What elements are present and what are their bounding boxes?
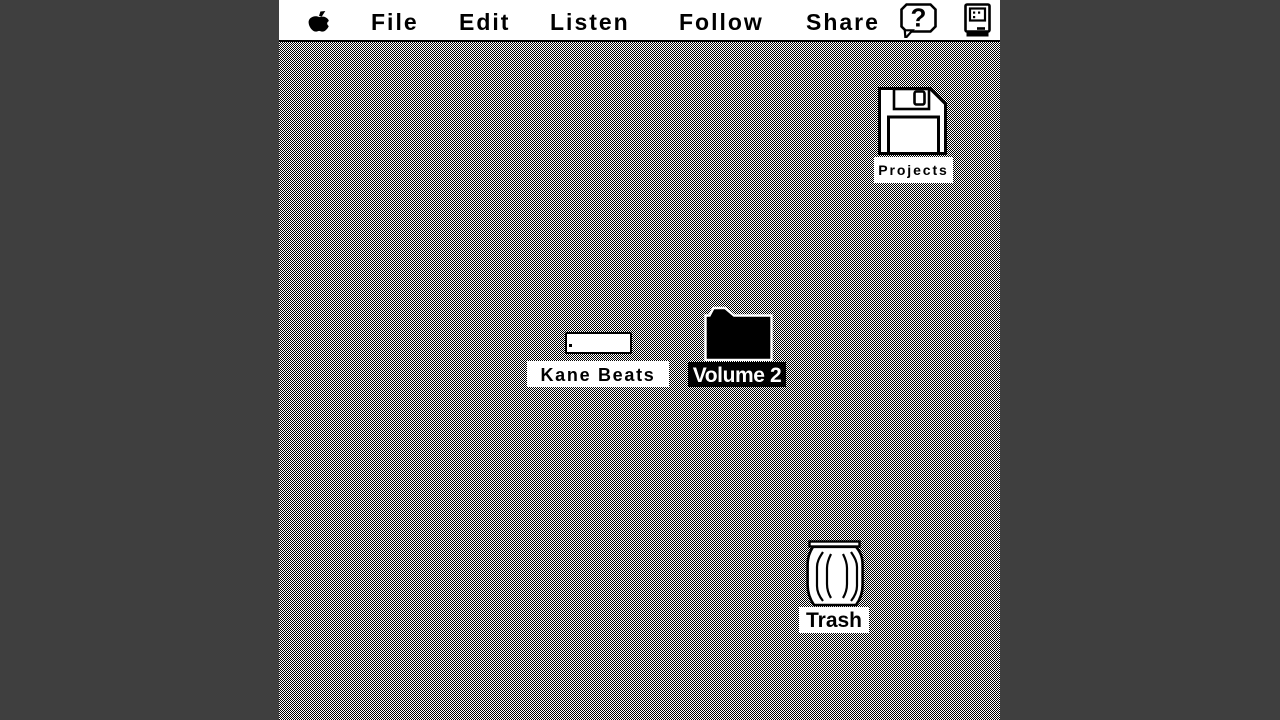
svg-text:?: ?	[910, 3, 926, 33]
